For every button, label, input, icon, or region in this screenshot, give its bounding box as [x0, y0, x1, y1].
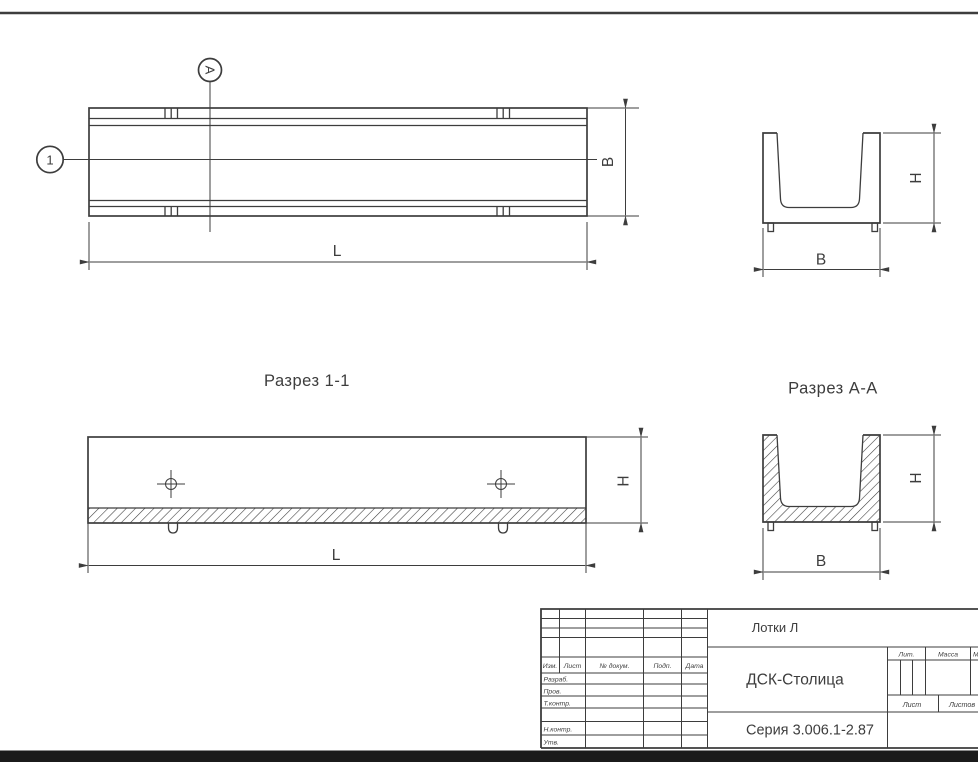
- prop-lit: Лит.: [898, 652, 915, 659]
- left-foot: [768, 223, 774, 232]
- row-tcontrol: Т.контр.: [544, 701, 572, 708]
- col-doc: № докум.: [600, 662, 630, 670]
- dim-height-label: H: [908, 172, 925, 183]
- plan-view: 1 А B L: [37, 59, 639, 271]
- channel-inner-contour: [777, 133, 863, 208]
- frame-bottom-bar: [0, 751, 978, 762]
- end-view: H B: [763, 133, 941, 277]
- row-checked: Пров.: [544, 689, 562, 696]
- col-sign: Подп.: [653, 662, 671, 670]
- dim-width-label: B: [600, 157, 617, 167]
- series-number: Серия 3.006.1-2.87: [746, 723, 874, 739]
- dim-length-label: L: [333, 243, 342, 260]
- dim-width-label: B: [816, 553, 826, 570]
- tray-plan-outline: [89, 108, 587, 216]
- drawing-canvas: 1 А B L H B: [0, 0, 978, 762]
- end-dim-width: B: [763, 228, 880, 277]
- floor-hatch: [88, 508, 586, 523]
- section-a-a-view: H B: [763, 435, 941, 580]
- plan-dim-width: B: [587, 108, 639, 216]
- organization-name: ДСК-Столица: [746, 672, 844, 689]
- col-list: Лист: [563, 663, 582, 670]
- dim-height-label: H: [616, 475, 633, 486]
- section-a-a-dim-width: B: [763, 528, 880, 580]
- crosshair: [487, 470, 515, 498]
- channel-inner-contour: [777, 435, 863, 507]
- prop-scale: Масштаб: [973, 651, 978, 659]
- bottom-loops: [169, 523, 508, 533]
- col-izm: Изм.: [543, 663, 558, 670]
- col-date: Дата: [685, 663, 704, 670]
- prop-sheet: Лист: [902, 700, 922, 709]
- section-1-1-dim-length: L: [88, 523, 586, 573]
- section-a-letter: А: [203, 66, 218, 75]
- section-a-a-dim-height: H: [883, 435, 941, 522]
- row-developed: Разраб.: [544, 676, 569, 684]
- title-block: Изм. Лист № докум. Подп. Дата Разраб. Пр…: [541, 609, 978, 748]
- prop-sheets: Листов: [948, 700, 975, 709]
- row-approved: Утв.: [543, 740, 560, 747]
- lifting-loop-marks: [165, 108, 510, 216]
- crosshair: [157, 470, 185, 498]
- dim-height-label: H: [908, 472, 925, 483]
- dim-length-label: L: [332, 547, 341, 564]
- section-a-a-title: Разрез А-А: [788, 380, 878, 398]
- section-1-1-view: H L: [88, 437, 648, 573]
- end-dim-height: H: [883, 133, 941, 223]
- left-foot: [768, 522, 774, 531]
- anchor-point-right: [487, 470, 515, 498]
- anchor-point-left: [157, 470, 185, 498]
- prop-mass: Масса: [938, 652, 958, 659]
- balloon-1-label: 1: [46, 153, 53, 168]
- section-1-1-dim-height: H: [586, 437, 648, 523]
- tray-plan-edge-lines: [89, 119, 587, 207]
- drawing-sheet: 1 А B L H B: [0, 0, 978, 762]
- right-foot: [872, 522, 878, 531]
- dim-width-label: B: [816, 252, 826, 269]
- row-ncontrol: Н.контр.: [544, 727, 573, 734]
- right-foot: [872, 223, 878, 232]
- plan-dim-length: L: [89, 222, 587, 270]
- section-1-1-title: Разрез 1-1: [264, 372, 350, 390]
- product-name: Лотки Л: [752, 620, 799, 635]
